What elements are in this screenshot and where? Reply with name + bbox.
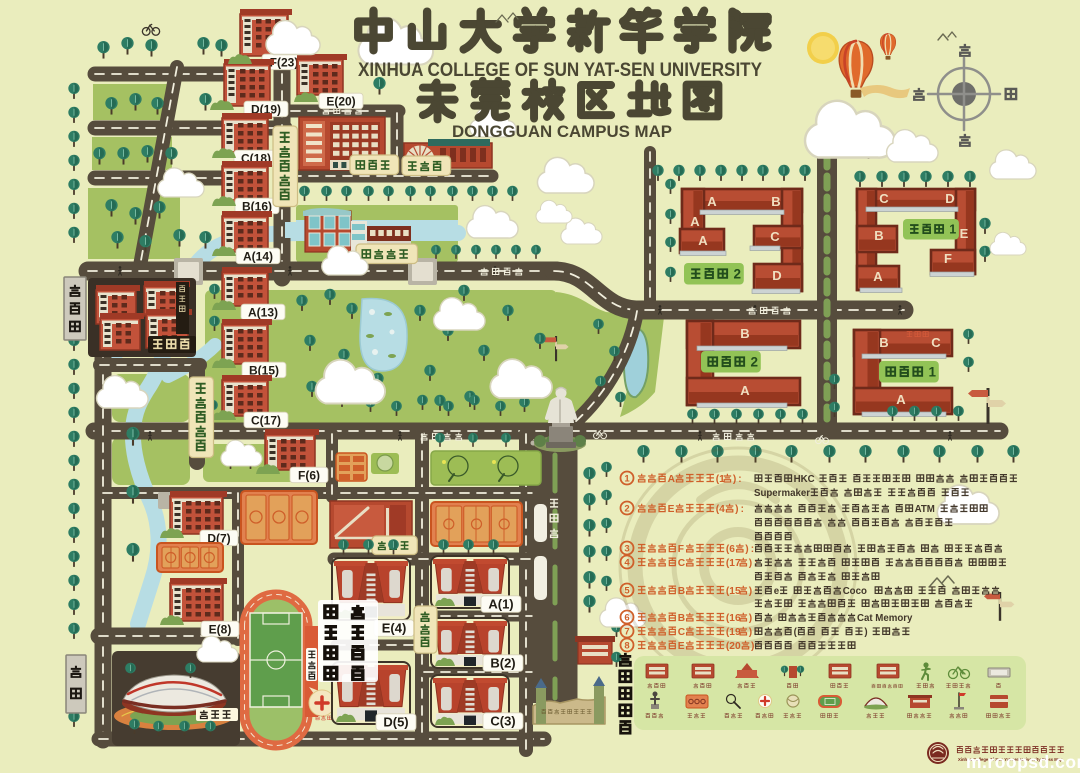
svg-text:): )	[749, 627, 752, 638]
svg-text:(6: (6	[726, 544, 735, 555]
svg-text:2: 2	[751, 355, 759, 370]
svg-text:F(6): F(6)	[298, 468, 320, 482]
svg-text:C: C	[678, 558, 686, 569]
svg-text:3: 3	[624, 544, 629, 555]
svg-text:): )	[751, 641, 754, 652]
svg-text:A: A	[740, 383, 750, 398]
svg-text:E: E	[678, 641, 685, 652]
svg-text:A: A	[873, 269, 883, 284]
svg-text:(4: (4	[716, 504, 725, 515]
svg-text:D: D	[772, 268, 781, 283]
svg-text:m.roopsd.com: m.roopsd.com	[966, 752, 1080, 772]
svg-text:): )	[745, 544, 748, 555]
svg-text:A(1): A(1)	[488, 597, 513, 612]
svg-text:C: C	[931, 335, 941, 350]
svg-text:(16: (16	[726, 613, 741, 624]
svg-text::: :	[754, 586, 757, 597]
svg-text:6: 6	[624, 613, 629, 624]
svg-text:E: E	[960, 226, 969, 241]
svg-text:(19: (19	[726, 627, 741, 638]
svg-text:1: 1	[624, 474, 630, 485]
svg-text:B: B	[678, 586, 685, 597]
svg-text:1: 1	[949, 223, 956, 237]
svg-text:): )	[735, 504, 738, 515]
svg-text:B: B	[740, 326, 749, 341]
svg-text:C: C	[770, 229, 780, 244]
svg-text:7: 7	[624, 627, 629, 638]
svg-text:F: F	[678, 544, 684, 555]
svg-text:8: 8	[624, 641, 629, 652]
svg-text:C(17): C(17)	[251, 413, 281, 427]
svg-text:Coco: Coco	[843, 586, 867, 597]
svg-text:): )	[749, 613, 752, 624]
svg-text:F: F	[944, 251, 952, 266]
svg-text:A: A	[896, 392, 906, 407]
svg-text:e: e	[774, 586, 780, 597]
svg-text:Cat Memory: Cat Memory	[857, 613, 913, 624]
svg-text:E(8): E(8)	[209, 622, 232, 636]
svg-text:B: B	[879, 335, 888, 350]
svg-text:E: E	[668, 504, 675, 515]
svg-text:): )	[733, 474, 736, 485]
svg-text::: :	[738, 474, 741, 485]
svg-text:A: A	[707, 194, 717, 209]
svg-text:2: 2	[734, 267, 742, 282]
svg-text:(15: (15	[726, 586, 741, 597]
svg-text:): )	[749, 586, 752, 597]
svg-text:A: A	[690, 214, 700, 229]
svg-text:1: 1	[929, 365, 937, 380]
svg-text:): )	[749, 558, 752, 569]
svg-text:XINHUA COLLEGE OF SUN YAT-S: XINHUA COLLEGE OF SUN YAT-SEN UNIVERSITY	[358, 60, 762, 81]
svg-text::: :	[741, 504, 744, 515]
svg-text:B: B	[874, 228, 883, 243]
svg-text:ATM: ATM	[915, 504, 935, 515]
svg-text:2: 2	[624, 504, 629, 515]
svg-text:(17: (17	[726, 558, 741, 569]
svg-text:HKC: HKC	[794, 474, 815, 485]
svg-text:B(2): B(2)	[490, 656, 515, 671]
svg-text:A(14): A(14)	[243, 249, 273, 263]
svg-text:B: B	[678, 613, 685, 624]
svg-text:C: C	[678, 627, 686, 638]
svg-text:5: 5	[624, 586, 630, 597]
svg-text:DONGGUAN CAMPUS MAP: DONGGUAN CAMPUS MAP	[452, 123, 672, 141]
svg-text:4: 4	[624, 558, 630, 569]
svg-text:C: C	[879, 191, 889, 206]
svg-text:A: A	[698, 233, 708, 248]
svg-text:D: D	[945, 191, 954, 206]
svg-text:D(5): D(5)	[383, 715, 408, 730]
svg-text:E(20): E(20)	[326, 94, 355, 108]
svg-text:A: A	[668, 474, 676, 485]
svg-text:B: B	[771, 194, 780, 209]
svg-text:A(13): A(13)	[248, 305, 278, 319]
svg-text:C(3): C(3)	[490, 714, 515, 729]
svg-text::: :	[751, 544, 754, 555]
svg-text:(20: (20	[726, 641, 741, 652]
svg-text:E(4): E(4)	[382, 621, 407, 636]
svg-text:Supermaker: Supermaker	[754, 488, 810, 499]
svg-text:): )	[864, 627, 867, 638]
